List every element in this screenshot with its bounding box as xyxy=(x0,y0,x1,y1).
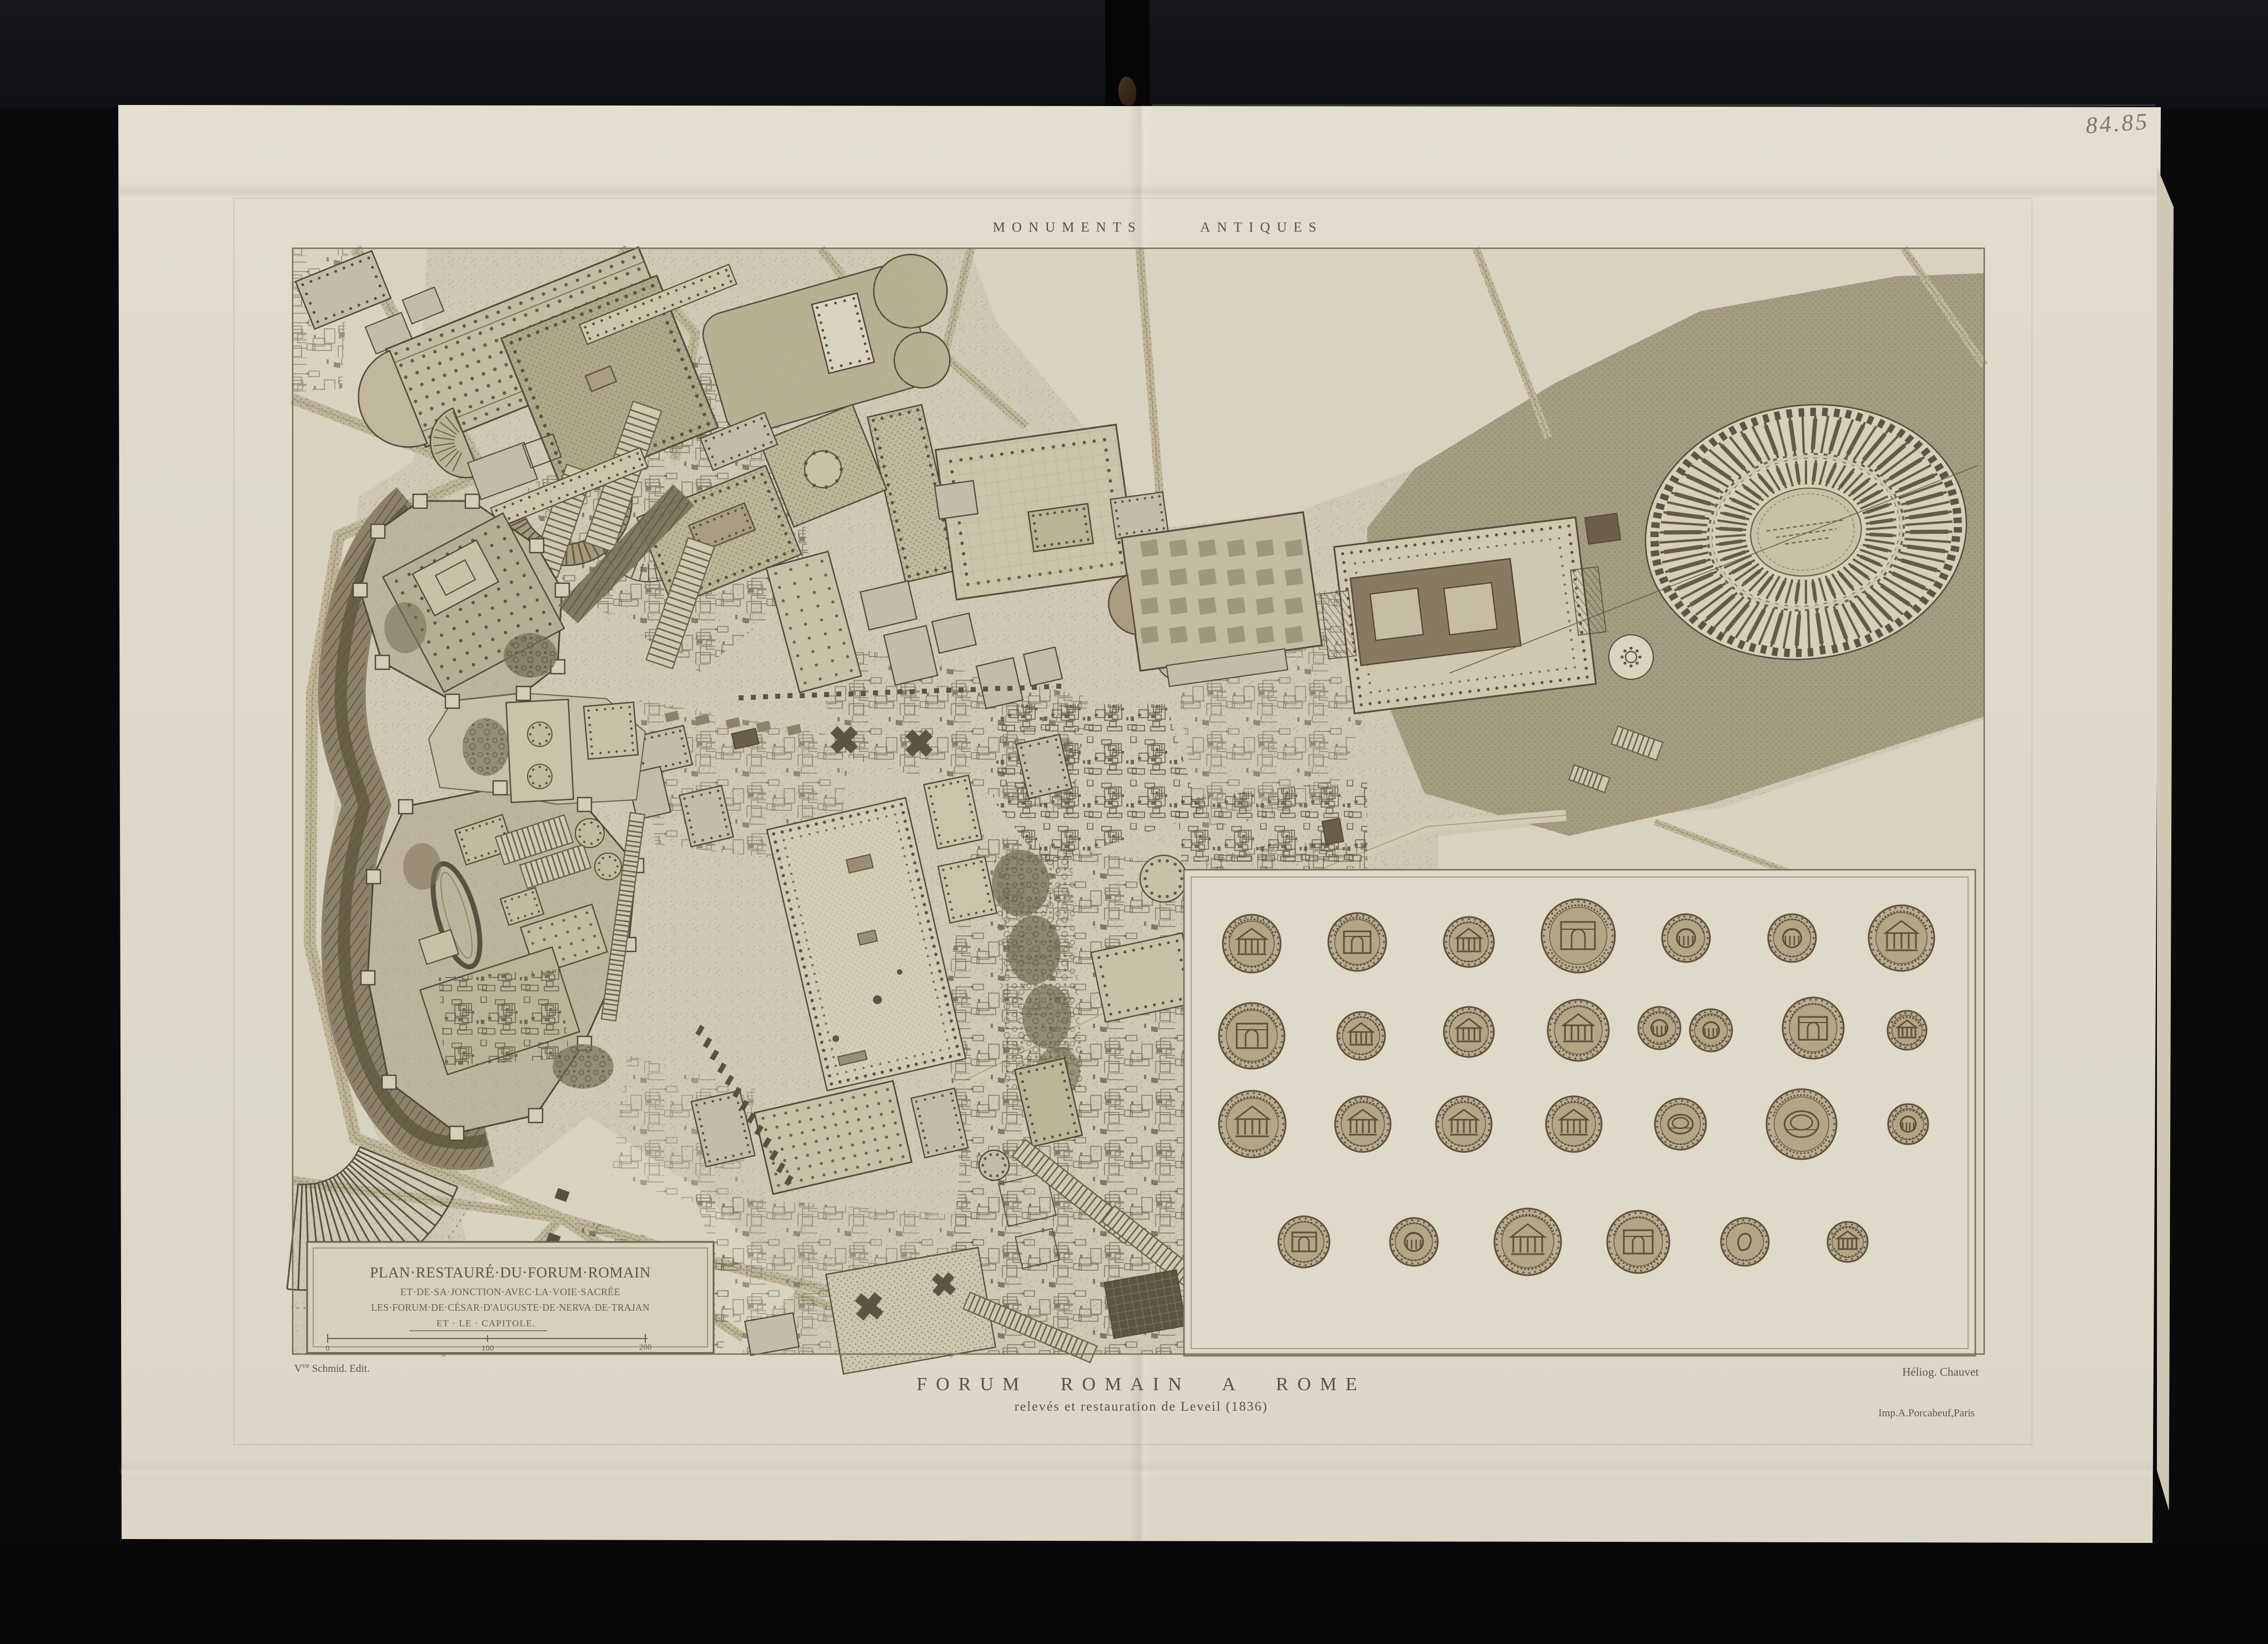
svg-text:200: 200 xyxy=(639,1343,652,1352)
svg-text:ET·DE·SA·JONCTION·AVEC·LA·VOIE: ET·DE·SA·JONCTION·AVEC·LA·VOIE·SACRÉE xyxy=(400,1286,620,1297)
svg-text:0: 0 xyxy=(325,1344,330,1353)
svg-text:LES·FORUM·DE·CÉSAR·D'AUGUSTE·D: LES·FORUM·DE·CÉSAR·D'AUGUSTE·DE·NERVA·DE… xyxy=(371,1302,650,1313)
svg-text:PLAN·RESTAURÉ·DU·FORUM·ROMAIN: PLAN·RESTAURÉ·DU·FORUM·ROMAIN xyxy=(370,1264,651,1281)
svg-text:100: 100 xyxy=(481,1344,494,1353)
svg-text:ET · LE · CAPITOLE.: ET · LE · CAPITOLE. xyxy=(436,1318,535,1329)
